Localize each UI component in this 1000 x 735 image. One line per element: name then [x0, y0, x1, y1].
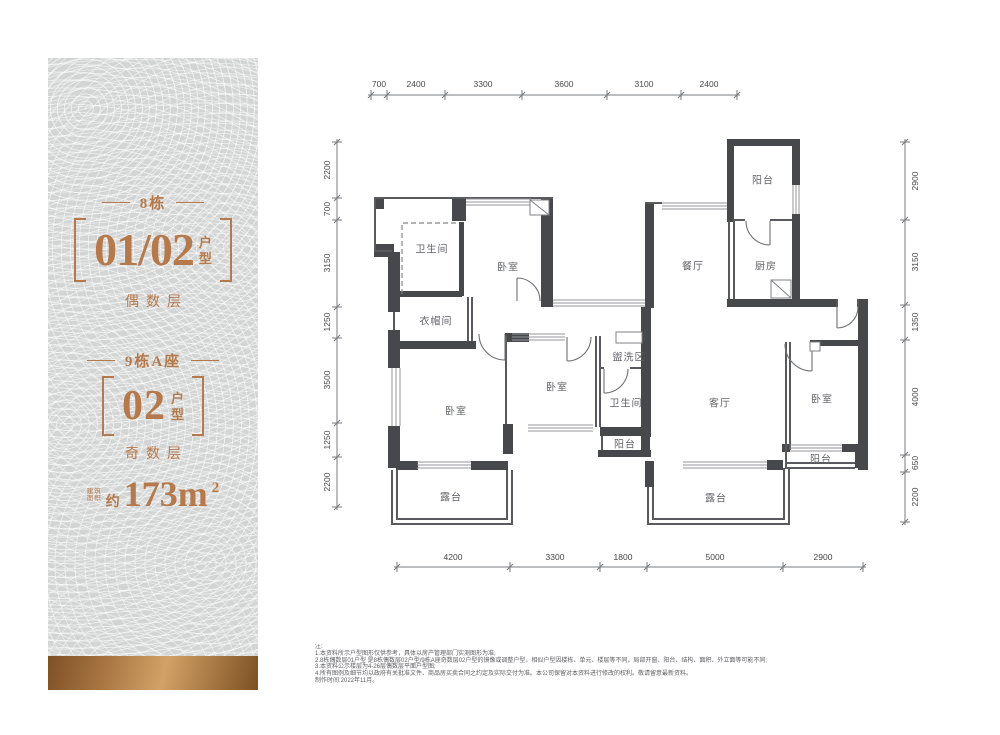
- dim-label-left: 700: [322, 202, 332, 216]
- dashed-wall: [402, 223, 458, 294]
- room-label-balcony-mid: 阳台: [614, 436, 636, 451]
- dim-label-bottom: 2900: [814, 552, 833, 562]
- dim-label-right: 2200: [910, 488, 920, 507]
- dim-label-left: 1250: [322, 431, 332, 450]
- dim-label-right: 650: [910, 456, 920, 470]
- dim-label-left: 3500: [322, 371, 332, 390]
- room-label-bath-tl: 卫生间: [416, 241, 449, 256]
- dimension-lines-group: [332, 90, 910, 572]
- dim-label-bottom: 4200: [444, 552, 463, 562]
- dim-label-top: 700: [372, 79, 386, 89]
- notes-line: 注:: [315, 644, 1000, 651]
- disclaimer-notes: 注: 1.本资料所示户型图形仅供参考，具体以房产管理部门实测图形为准; 2.8栋…: [315, 644, 1000, 685]
- room-label-terrace-center: 露台: [705, 490, 727, 505]
- room-label-bed-mid: 卧室: [546, 379, 568, 394]
- dim-label-top: 3100: [635, 79, 654, 89]
- dim-label-bottom: 3300: [546, 552, 565, 562]
- room-label-balcony-top: 阳台: [752, 172, 774, 187]
- brochure-page: 8栋 01/02 户 型 偶数层 9栋A座 02: [0, 0, 1000, 735]
- room-label-bed-right: 卧室: [811, 391, 833, 406]
- dim-label-left: 2200: [322, 161, 332, 180]
- dim-label-top: 2400: [407, 79, 426, 89]
- dim-label-top: 2400: [700, 79, 719, 89]
- room-label-bath-mid: 卫生间: [610, 395, 643, 410]
- floor-plan-svg: [0, 0, 1000, 735]
- room-label-wash-area: 盥洗区: [613, 349, 646, 364]
- room-label-bed-top: 卧室: [497, 259, 519, 274]
- dim-label-left: 2200: [322, 473, 332, 492]
- notes-line: 1.本资料所示户型图形仅供参考，具体以房产管理部门实测图形为准;: [315, 651, 1000, 658]
- room-label-bed-left: 卧室: [445, 403, 467, 418]
- dim-label-bottom: 1800: [614, 552, 633, 562]
- dim-label-right: 4000: [910, 388, 920, 407]
- dim-label-top: 3600: [555, 79, 574, 89]
- notes-line: 制作时间:2022年11月。: [315, 678, 1000, 685]
- notes-line: 4.所有图例及细节均以政府有关批准文件、商品房买卖合同之约定及实际交付为准。本公…: [315, 671, 1000, 678]
- dim-label-left: 1250: [322, 313, 332, 332]
- room-label-cloakroom: 衣帽间: [420, 313, 453, 328]
- fixtures-group: [530, 200, 820, 351]
- dim-label-right: 1350: [910, 313, 920, 332]
- room-label-dining: 餐厅: [682, 258, 704, 273]
- dim-label-bottom: 5000: [706, 552, 725, 562]
- dim-label-right: 2900: [910, 172, 920, 191]
- room-label-living: 客厅: [709, 395, 731, 410]
- dim-label-left: 3150: [322, 254, 332, 273]
- room-label-terrace-left: 露台: [440, 489, 462, 504]
- room-label-balcony-right: 阳台: [810, 451, 832, 466]
- dim-label-top: 3300: [474, 79, 493, 89]
- dim-label-right: 3150: [910, 253, 920, 272]
- room-label-kitchen: 厨房: [755, 258, 777, 273]
